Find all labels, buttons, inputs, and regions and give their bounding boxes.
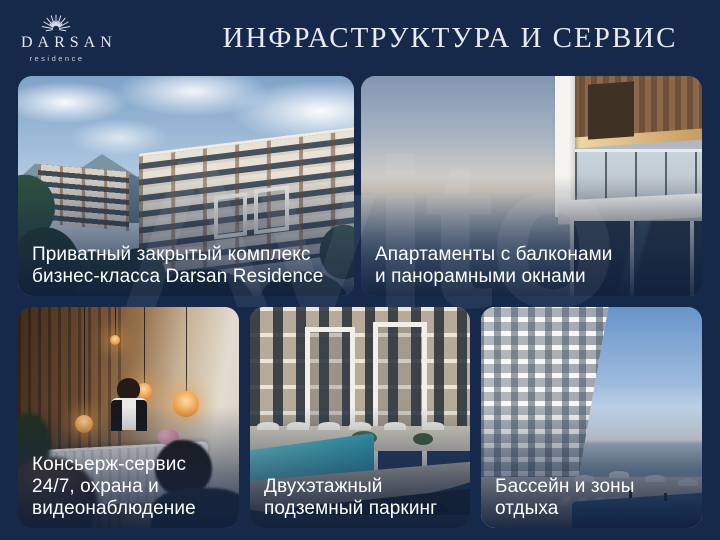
card-concierge: Консьерж-сервис 24/7, охрана и видеонабл…	[18, 307, 239, 528]
slide: DARSAN residence ИНФРАСТРУКТУРА И СЕРВИС…	[0, 0, 720, 540]
card-caption: Консьерж-сервис 24/7, охрана и видеонабл…	[32, 454, 231, 520]
lamp-cord	[186, 307, 187, 393]
card-caption: Двухэтажный подземный паркинг	[264, 476, 462, 520]
card-caption: Апартаменты с балконами и панорамными ок…	[375, 244, 694, 288]
lamp-cord	[84, 307, 85, 418]
card-apartments-balconies: Апартаменты с балконами и панорамными ок…	[361, 76, 702, 296]
logo-brand-text: DARSAN	[16, 34, 96, 52]
lamp-cord	[144, 307, 145, 384]
receptionist-hair	[117, 378, 140, 400]
sunburst-icon	[34, 5, 78, 33]
darsan-logo: DARSAN residence	[16, 5, 96, 63]
logo-subtitle-text: residence	[16, 54, 96, 63]
card-private-complex: Приватный закрытый комплекс бизнес-класс…	[18, 76, 354, 296]
lamp-cord	[115, 307, 116, 336]
card-pool: Бассейн и зоны отдыха	[481, 307, 702, 528]
page-title: ИНФРАСТРУКТУРА И СЕРВИС	[180, 22, 720, 55]
card-parking: Двухэтажный подземный паркинг	[250, 307, 470, 528]
open-doorway	[588, 81, 634, 139]
edison-bulb	[110, 335, 120, 345]
card-caption: Бассейн и зоны отдыха	[495, 476, 694, 520]
card-caption: Приватный закрытый комплекс бизнес-класс…	[32, 244, 346, 288]
